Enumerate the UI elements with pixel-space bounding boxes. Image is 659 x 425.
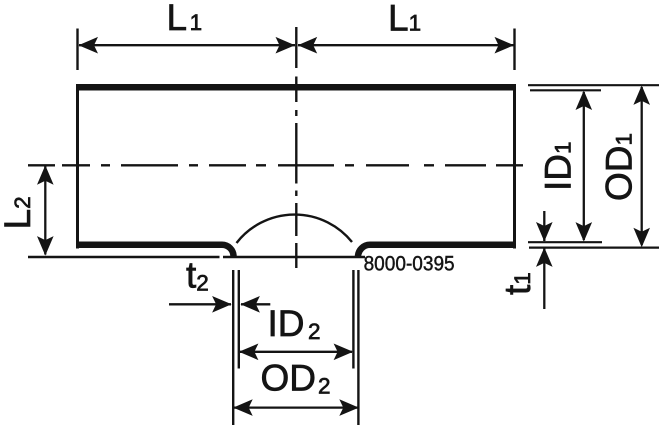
svg-text:8000-0395: 8000-0395: [364, 252, 455, 275]
